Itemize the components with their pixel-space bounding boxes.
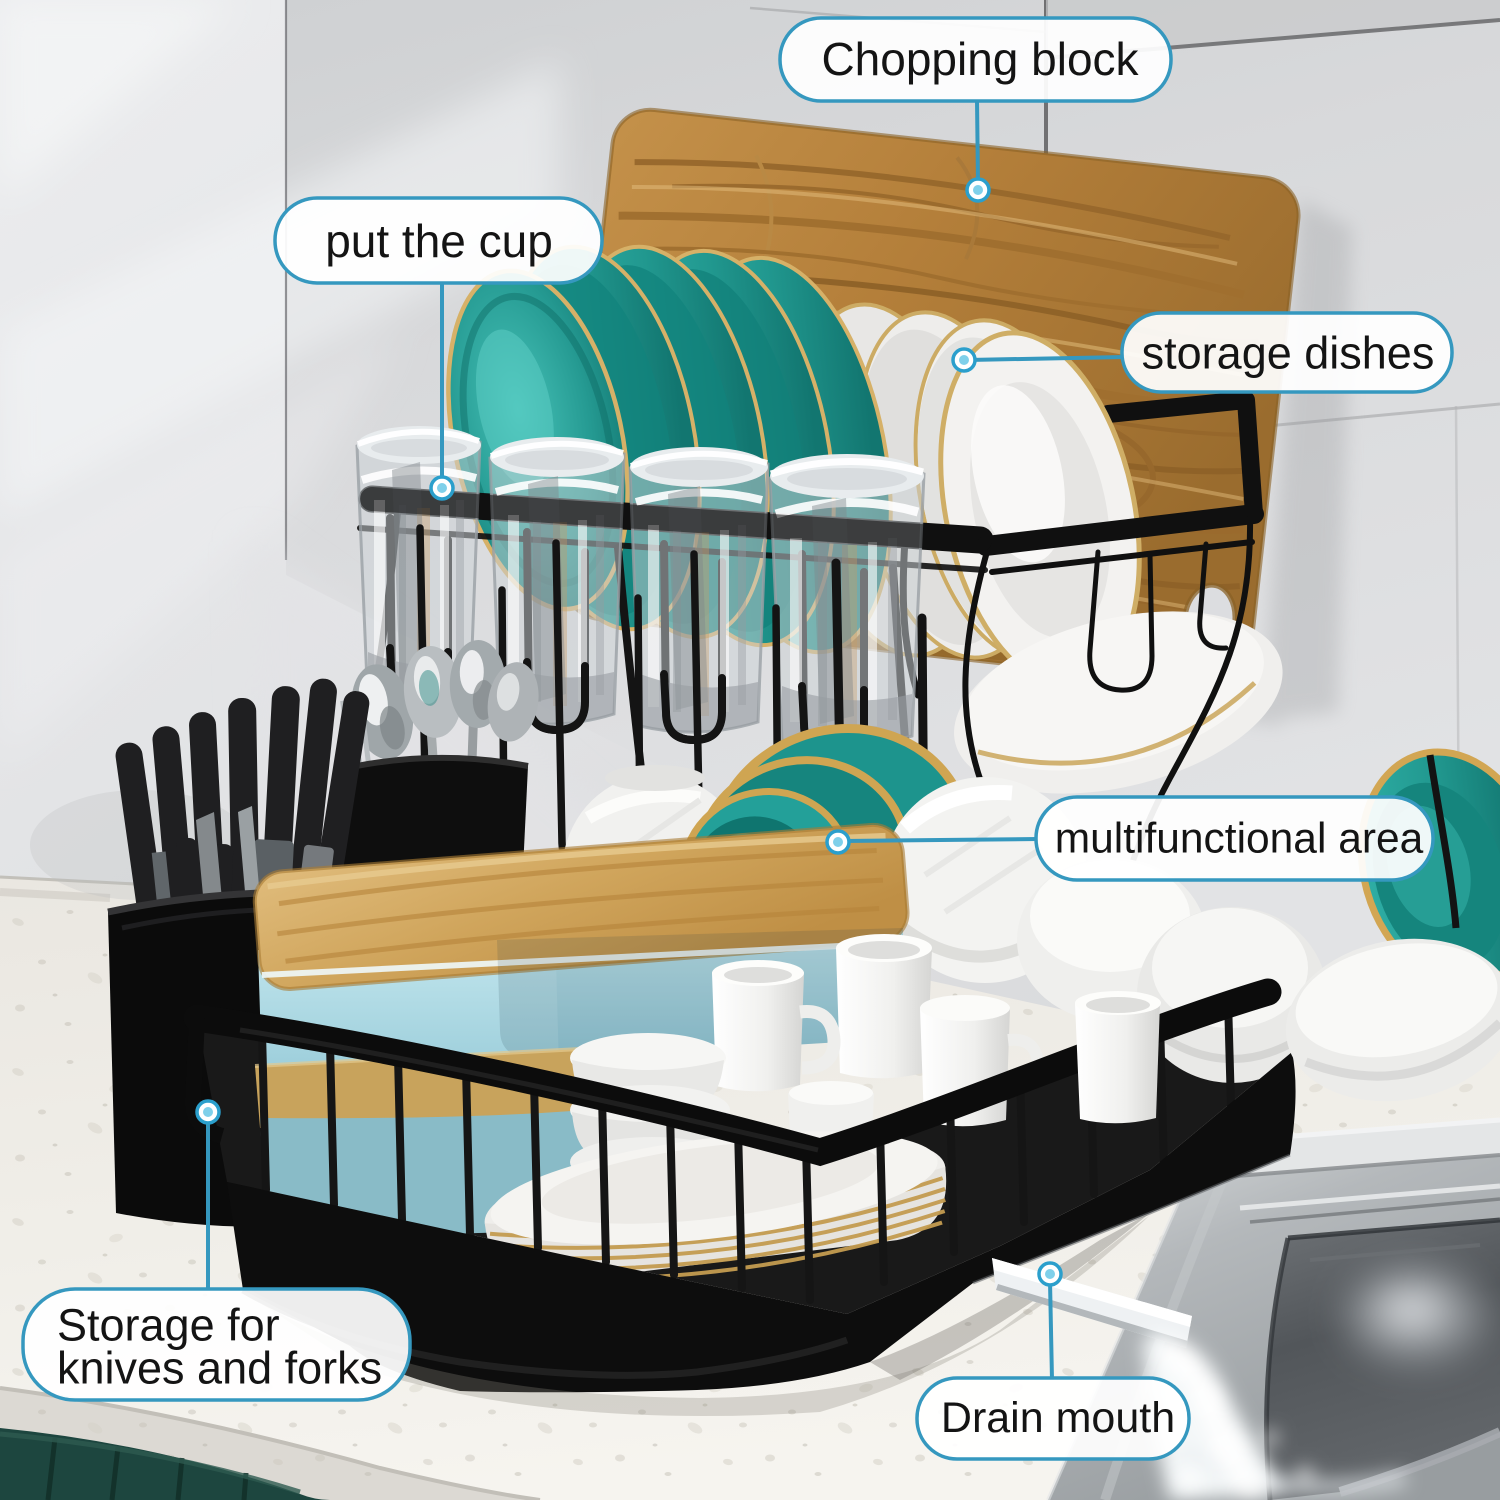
svg-text:Drain mouth: Drain mouth [941,1394,1175,1442]
svg-text:knives and forks: knives and forks [57,1343,382,1394]
svg-text:put the cup: put the cup [325,215,553,267]
svg-text:multifunctional area: multifunctional area [1055,816,1424,863]
svg-text:storage dishes: storage dishes [1142,328,1435,379]
svg-text:Chopping block: Chopping block [821,33,1139,85]
